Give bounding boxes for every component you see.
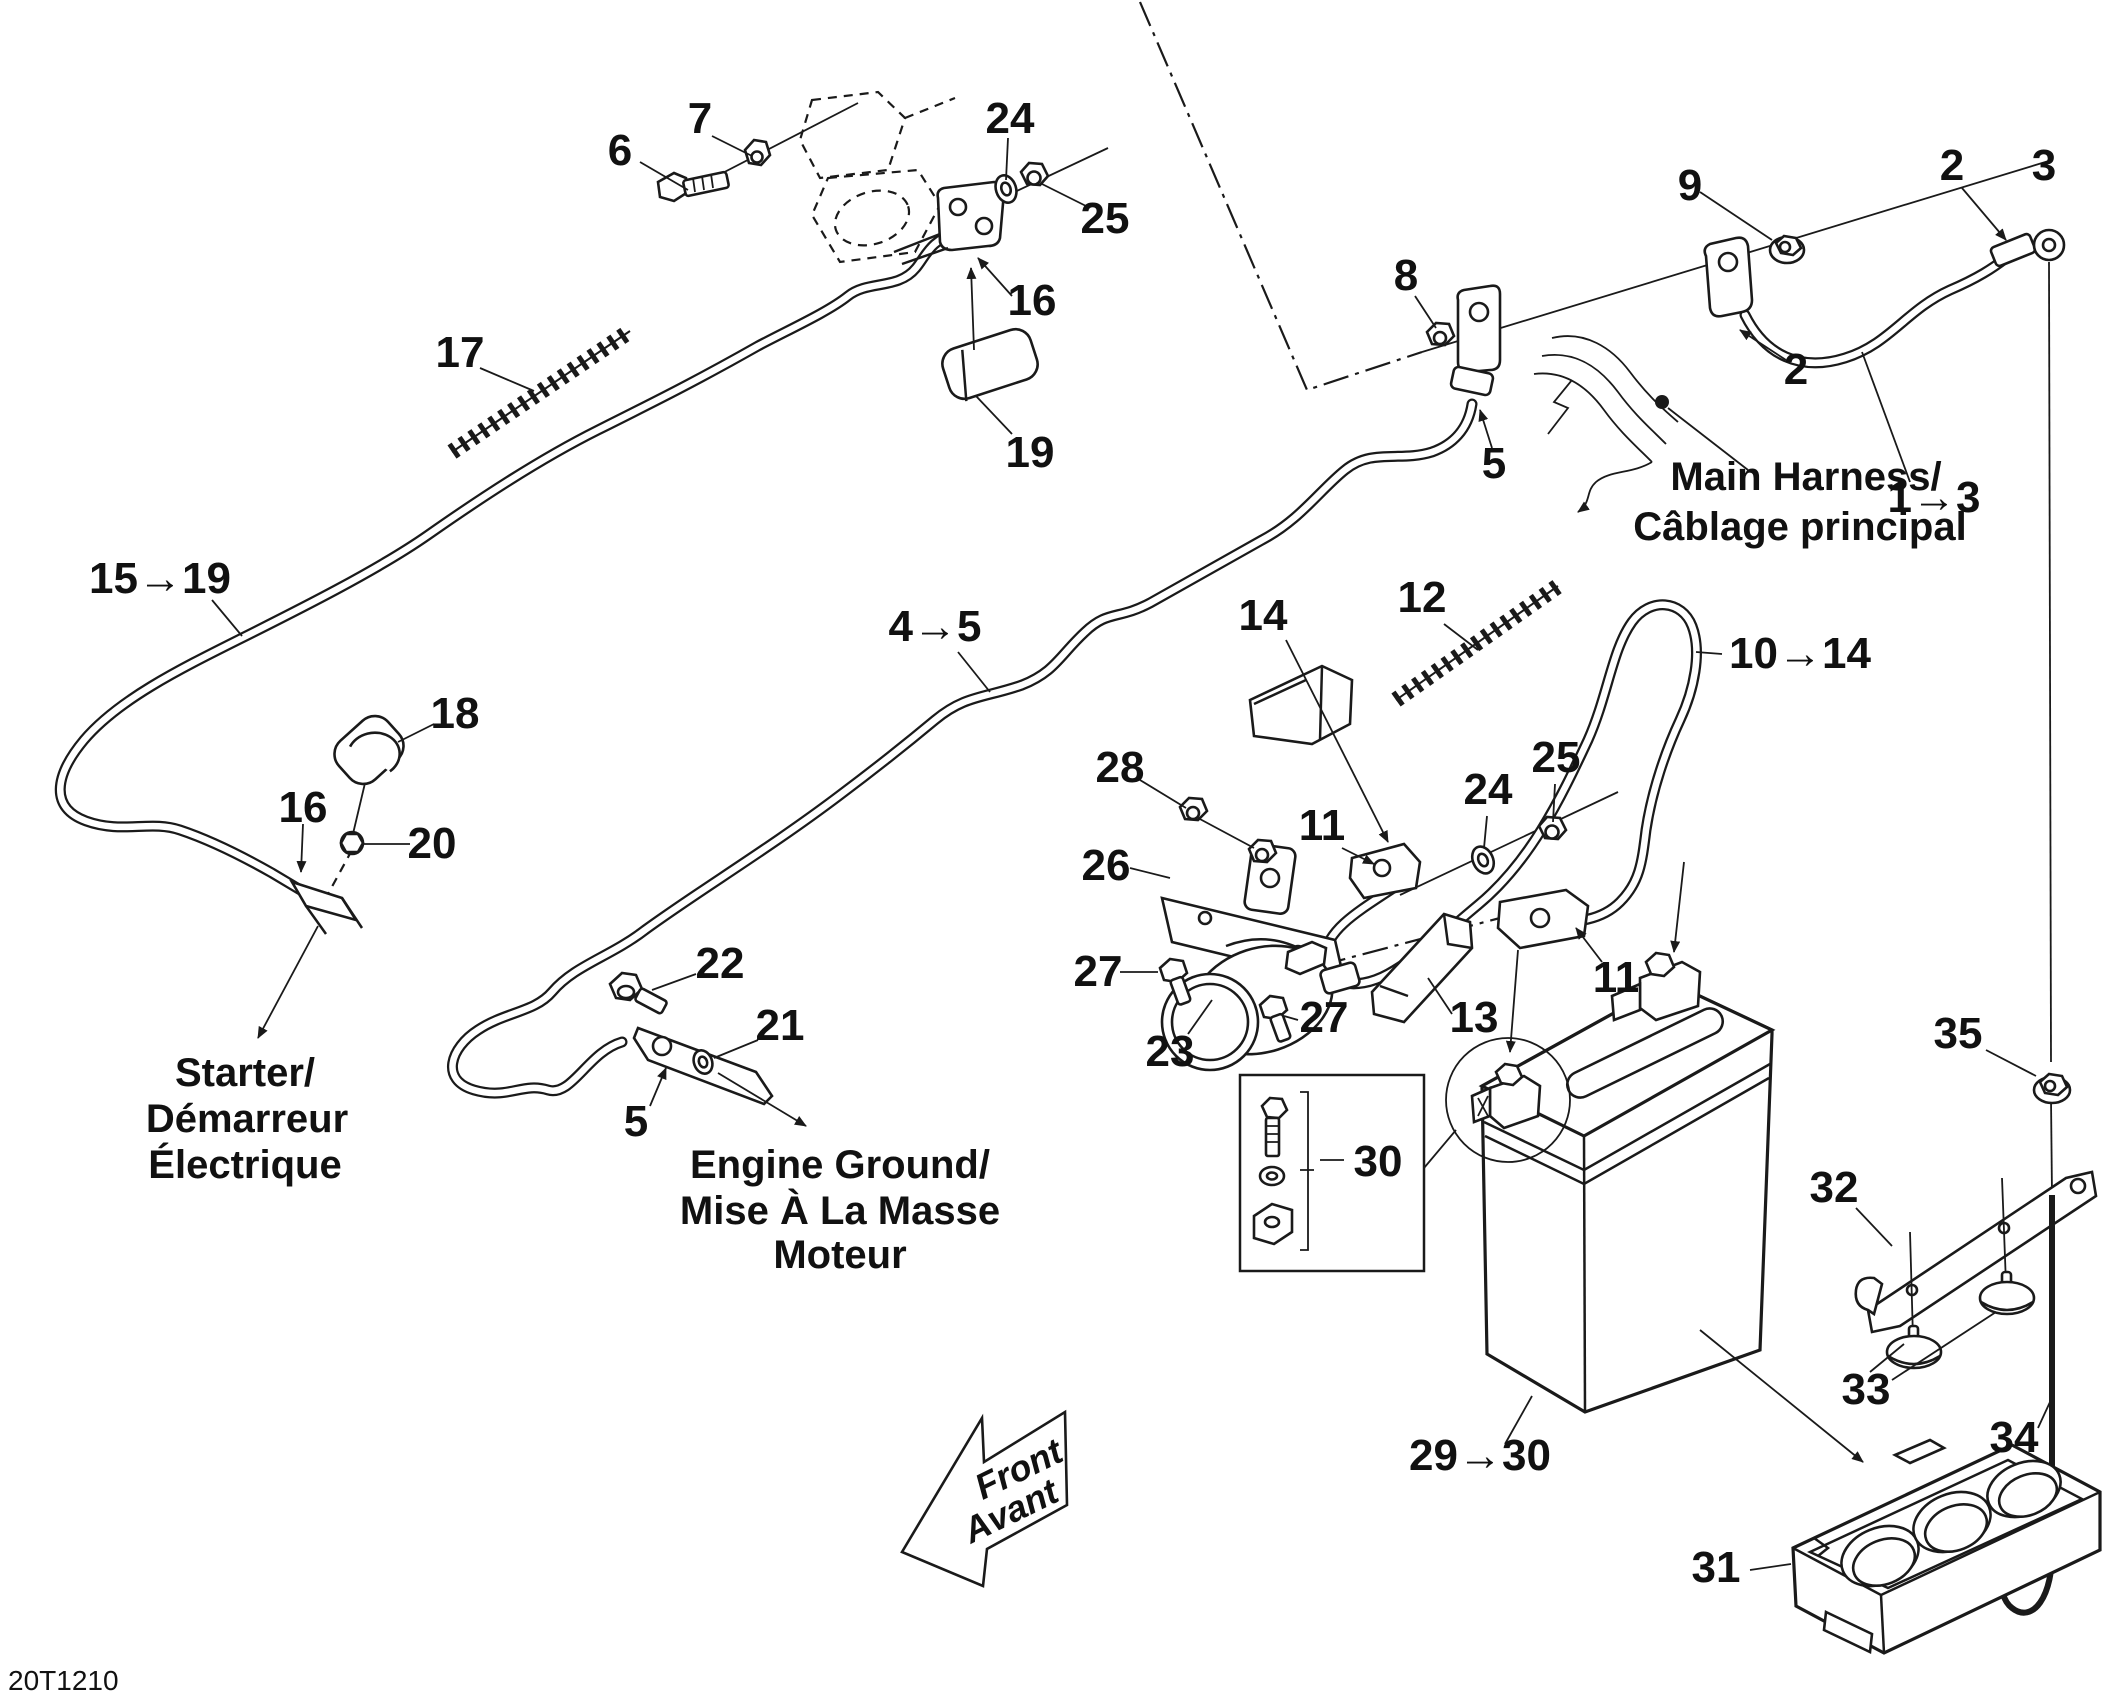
nut-7 [745, 140, 770, 165]
hardware-kit-box-30 [1240, 1075, 1456, 1271]
callout-2a: 2 [1940, 141, 1964, 190]
starter-label-line2: Démarreur [146, 1097, 348, 1141]
callout-15-19: 15→19 [89, 554, 231, 603]
callout-26: 26 [1082, 841, 1131, 890]
callout-25a: 25 [1081, 194, 1130, 243]
flange-nut-28b [1249, 840, 1276, 862]
nut-20 [341, 832, 363, 854]
document-code: 20T1210 [8, 1665, 119, 1696]
callout-25b: 25 [1532, 733, 1581, 782]
callout-23: 23 [1146, 1027, 1195, 1076]
callout-34: 34 [1990, 1413, 2039, 1462]
callout-2b: 2 [1784, 345, 1808, 394]
nut-25a [1021, 163, 1048, 185]
callout-16a: 16 [1008, 276, 1057, 325]
callout-24a: 24 [986, 94, 1035, 143]
cable-lug-11-left [1350, 844, 1420, 898]
callout-4-5: 4→5 [889, 602, 982, 651]
callout-11a: 11 [1299, 801, 1346, 850]
ring-terminal-3 [2034, 230, 2064, 260]
callout-7: 7 [688, 94, 712, 143]
callout-27a: 27 [1074, 947, 1123, 996]
callout-21: 21 [756, 1001, 805, 1050]
bolt-6 [658, 172, 729, 201]
callout-5a: 5 [1482, 439, 1506, 488]
callout-32: 32 [1810, 1163, 1859, 1212]
battery-tray-31 [1793, 1440, 2100, 1653]
callout-30: 30 [1354, 1137, 1403, 1186]
terminal-boot-14 [1250, 666, 1352, 744]
callout-22: 22 [696, 939, 745, 988]
callout-18: 18 [431, 689, 480, 738]
callout-5b: 5 [624, 1097, 648, 1146]
main-harness-label-line2: Câblage principal [1633, 505, 1966, 549]
lug-bracket-8 [1458, 286, 1500, 372]
callout-35: 35 [1934, 1009, 1983, 1058]
callout-16b: 16 [279, 783, 328, 832]
engine-ground-label-line1: Engine Ground/ [690, 1143, 990, 1187]
flange-nut-9 [1770, 236, 1804, 263]
engine-ground-label-line3: Moteur [773, 1233, 906, 1277]
callout-labels: 6 7 17 24 25 16 19 15→19 18 16 20 9 2 3 … [89, 94, 2056, 1592]
callout-12: 12 [1398, 573, 1447, 622]
flange-nut-35 [2034, 1074, 2070, 1103]
callout-3: 3 [2032, 141, 2056, 190]
callout-27b: 27 [1300, 993, 1349, 1042]
callout-10-14: 10→14 [1729, 629, 1871, 678]
terminal-boot-18 [327, 709, 411, 792]
engine-ground-label-line2: Mise À La Masse [680, 1188, 1000, 1233]
front-direction-arrow: Front Avant [902, 1412, 1071, 1586]
callout-13: 13 [1450, 993, 1499, 1042]
cable-lug-11-right [1498, 890, 1588, 948]
callout-31: 31 [1692, 1543, 1741, 1592]
callout-17: 17 [436, 328, 485, 377]
clevis-bracket-16 [894, 182, 1004, 264]
callout-19: 19 [1006, 428, 1055, 477]
main-harness-label-line1: Main Harness/ [1670, 455, 1941, 499]
callout-24b: 24 [1464, 765, 1513, 814]
harness-callout-dot [1655, 395, 1669, 409]
parts-diagram-page: Front Avant 6 7 17 24 25 16 19 15→19 18 … [0, 0, 2105, 1700]
lug-bracket-9 [1705, 238, 1752, 317]
callout-33: 33 [1842, 1365, 1891, 1414]
starter-label-line3: Électrique [148, 1142, 341, 1187]
starter-label-line1: Starter/ [175, 1051, 315, 1095]
callout-6: 6 [608, 126, 632, 175]
electrical-system-parts-diagram: Front Avant 6 7 17 24 25 16 19 15→19 18 … [0, 0, 2105, 1700]
callout-8: 8 [1394, 251, 1418, 300]
terminal-boot-19 [938, 325, 1042, 403]
nut-8 [1427, 323, 1454, 345]
bolt-22 [610, 973, 668, 1014]
washer-24b [1468, 843, 1498, 877]
cable-ferrule-2-right [1990, 233, 2036, 267]
battery-ground-cable [1427, 230, 2064, 396]
callout-29-30: 29→30 [1409, 1431, 1551, 1480]
callout-11b: 11 [1593, 953, 1640, 1002]
callout-20: 20 [408, 819, 457, 868]
callout-28: 28 [1096, 743, 1145, 792]
starter-cable-terminal [292, 882, 362, 934]
callout-9: 9 [1678, 161, 1702, 210]
callout-14: 14 [1239, 591, 1288, 640]
holddown-bracket-32 [1856, 1172, 2096, 1332]
flange-nut-28a [1180, 798, 1207, 820]
